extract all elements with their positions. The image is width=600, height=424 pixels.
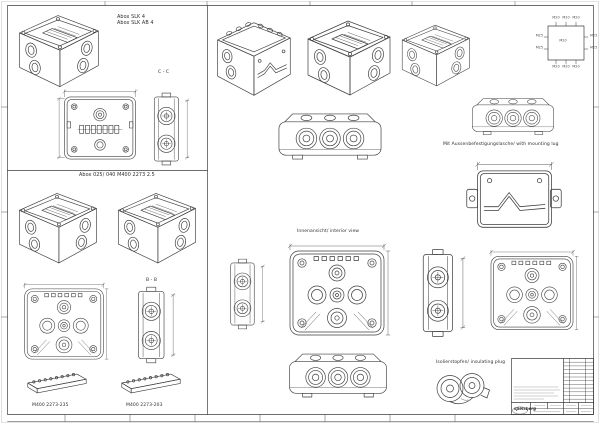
section-label-cc: C - C	[158, 70, 169, 75]
lid-front-view	[467, 162, 561, 227]
part-number-right: M400 2273-203	[126, 403, 163, 408]
knockout-label-left-1: M25	[536, 34, 543, 38]
side-section-interior-left	[231, 259, 265, 329]
knockout-label-center: M20	[559, 39, 566, 43]
knockout-label-left-2: M25	[536, 46, 543, 50]
front-view-section-bb	[23, 283, 108, 359]
interior-front-view	[288, 244, 390, 335]
gland-front-view-top	[279, 114, 381, 159]
insulating-plug-note: Isolierstopfen/ insulating plug	[436, 360, 505, 365]
section-label-bb: B - B	[146, 278, 157, 283]
front-view-section-cc	[57, 90, 137, 159]
knockout-label-right-1: M25	[590, 34, 597, 38]
iso-view-open-box-4	[402, 25, 469, 86]
side-section-bb	[139, 287, 175, 363]
iso-view-open-box-3	[308, 21, 390, 95]
drawing-sheet: Abox SLK 4 Abox SLK AB 4 C - C Abox 025/…	[0, 0, 600, 424]
company-logo: spelsberg	[514, 407, 536, 412]
mounting-lug-box-view	[472, 99, 553, 135]
terminal-strip-left	[28, 373, 86, 393]
drawing-line-art	[0, 0, 600, 424]
iso-view-terminal-box	[20, 16, 99, 87]
knockout-label-top-3: M20	[572, 16, 579, 20]
insulating-plug-view	[437, 374, 490, 404]
knockout-label-bottom-1: M20	[552, 65, 559, 69]
knockout-label-right-2: M25	[590, 46, 597, 50]
iso-view-open-box-2	[118, 193, 195, 263]
side-section-cc	[154, 93, 189, 165]
side-section-right	[423, 250, 465, 337]
interior-front-view-right	[489, 250, 578, 329]
part-number-left: M400 2273-235	[32, 403, 69, 408]
iso-view-open-box-1	[19, 193, 96, 263]
gland-front-view-bottom	[289, 354, 386, 397]
interior-view-note: Innenansicht/ interior view	[297, 229, 359, 234]
terminal-strip-right	[122, 373, 180, 393]
knockout-label-top-2: M20	[562, 16, 569, 20]
mounting-lug-note: Mit Aussenbefestigungslasche/ with mount…	[443, 142, 559, 147]
series-title: Abox 025/ 040 M400 2273 2.5	[79, 172, 155, 177]
knockout-label-top-1: M20	[552, 16, 559, 20]
knockout-label-bottom-3: M20	[572, 65, 579, 69]
model-label-b: Abox SLK AB 4	[117, 20, 154, 25]
knockout-label-bottom-2: M20	[562, 65, 569, 69]
iso-view-closed-box	[218, 22, 291, 96]
